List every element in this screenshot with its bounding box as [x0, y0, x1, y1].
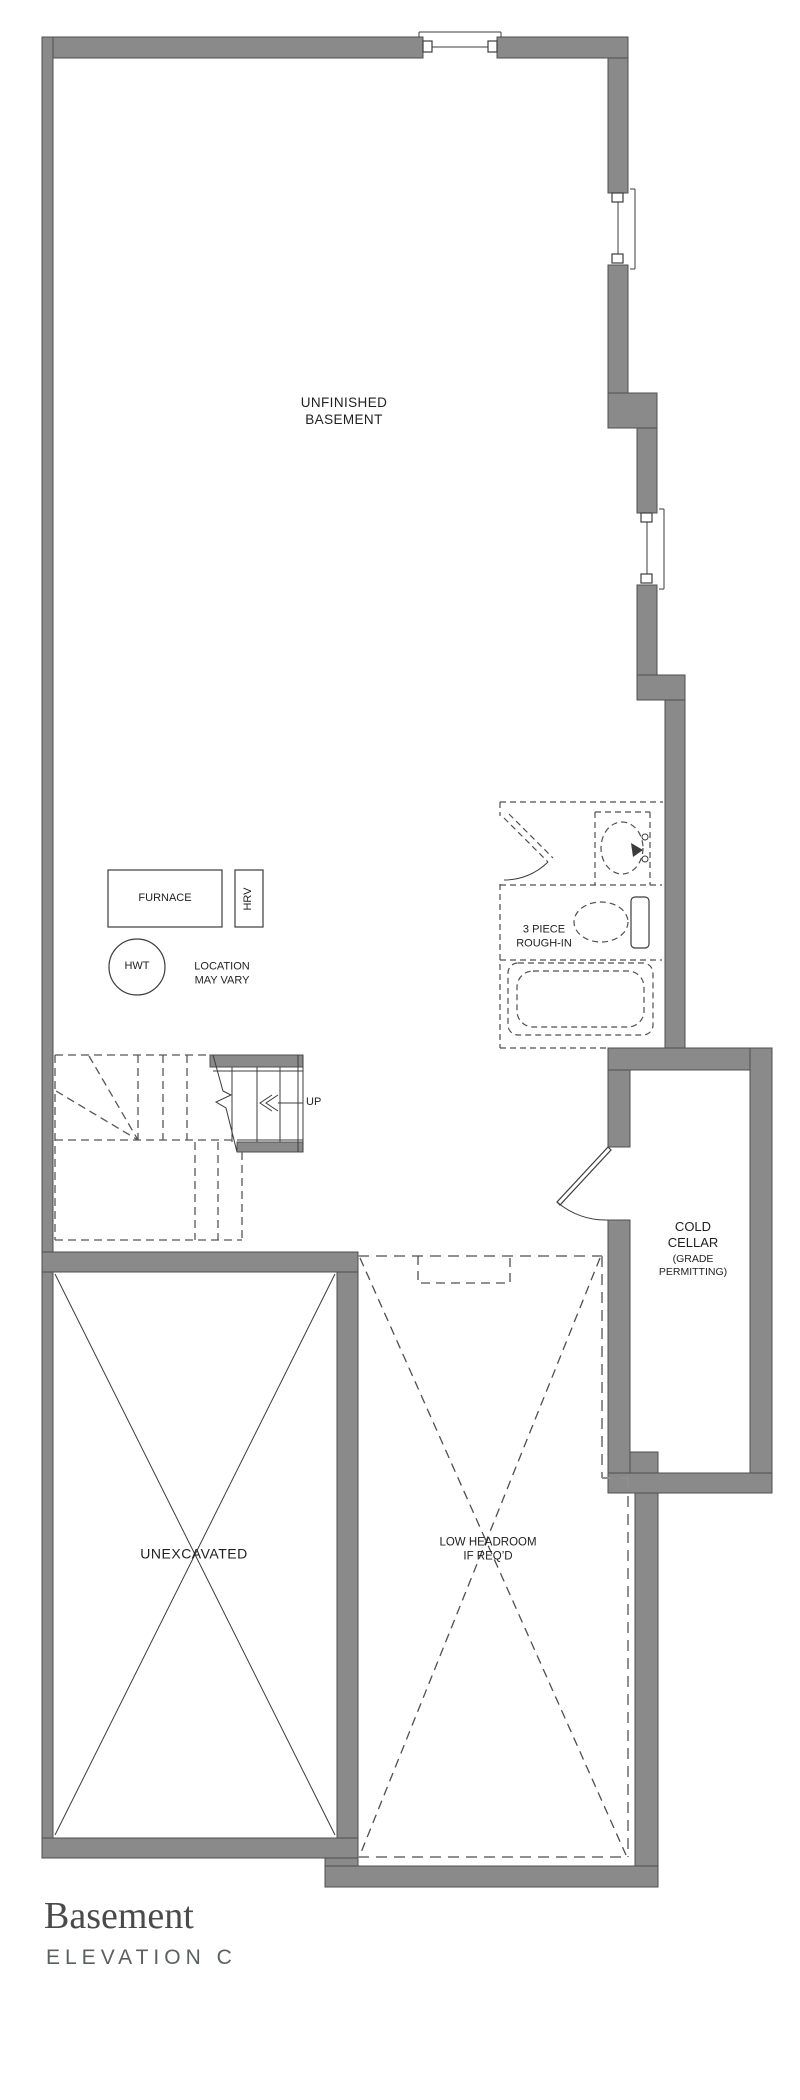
hrv-label: HRV	[242, 887, 256, 910]
stair-dashed-outline	[55, 1055, 242, 1240]
bathroom-rough-in-label: 3 PIECE ROUGH-IN	[516, 923, 572, 951]
window-right-1	[612, 189, 635, 269]
cold-cellar-label: COLD CELLAR	[668, 1219, 719, 1252]
basement-floor-plan: UNFINISHED BASEMENT FURNACE HRV HWT LOCA…	[0, 0, 800, 2100]
plan-title: Basement	[44, 1894, 194, 1938]
wall-left-party	[42, 37, 53, 1858]
wall-right-5	[665, 700, 685, 1048]
stair-band-top	[210, 1055, 303, 1067]
wall-unexcavated-top	[42, 1252, 358, 1272]
wall-right-jog-1	[608, 393, 657, 428]
door-leaf	[557, 1147, 611, 1205]
wall-right-1	[608, 58, 628, 193]
window-top	[419, 32, 501, 52]
window-right-2	[641, 509, 664, 589]
toilet-bowl	[574, 902, 628, 942]
low-headroom-label: LOW HEADROOM IF REQ’D	[439, 1536, 536, 1565]
sink-spout	[631, 843, 643, 857]
unexcavated-label: UNEXCAVATED	[140, 1545, 247, 1563]
bathtub-inner	[517, 971, 644, 1027]
stair-winder-lines	[56, 1056, 138, 1140]
cold-cellar-sublabel: (GRADE PERMITTING)	[659, 1253, 727, 1279]
wall-top-right	[497, 37, 628, 58]
wall-unexcavated-bottom	[42, 1838, 358, 1858]
furnace-label: FURNACE	[138, 892, 191, 906]
wall-top-left	[42, 37, 423, 58]
wall-coldcellar-left-lower	[608, 1220, 630, 1473]
cold-cellar-door	[557, 1147, 611, 1220]
unfinished-basement-label: UNFINISHED BASEMENT	[301, 395, 388, 429]
stair-break-line	[213, 1055, 237, 1152]
garage-top-notch	[418, 1256, 510, 1283]
up-arrow-chevrons	[260, 1095, 278, 1111]
bathroom-door-leaf	[504, 814, 553, 862]
stair-band-bottom	[237, 1142, 303, 1152]
sink-tap-right	[642, 856, 648, 862]
wall-right-jog-2	[637, 675, 685, 700]
location-may-vary-note: LOCATION MAY VARY	[194, 960, 249, 988]
wall-garage-bottom	[325, 1866, 658, 1887]
wall-below-coldcellar	[635, 1493, 658, 1887]
bathtub-outer	[508, 963, 653, 1035]
stairs-up-label: UP	[306, 1096, 321, 1110]
floor-plan-drawing	[0, 0, 800, 2100]
door-swing	[557, 1202, 608, 1220]
wall-right-3	[637, 428, 657, 513]
wall-coldcellar-step	[630, 1452, 658, 1473]
plan-elevation: ELEVATION C	[46, 1946, 237, 1970]
wall-coldcellar-bottom	[608, 1473, 772, 1493]
bathroom-door-swing	[504, 862, 548, 880]
toilet-tank	[631, 897, 649, 948]
sink-tap-left	[642, 834, 648, 840]
wall-coldcellar-left-upper	[608, 1070, 630, 1147]
wall-right-4	[637, 585, 657, 675]
wall-unexcavated-right	[337, 1272, 358, 1838]
wall-coldcellar-top	[608, 1048, 750, 1070]
hwt-label: HWT	[124, 960, 149, 974]
wall-coldcellar-right	[750, 1048, 772, 1493]
wall-right-2	[608, 265, 628, 393]
